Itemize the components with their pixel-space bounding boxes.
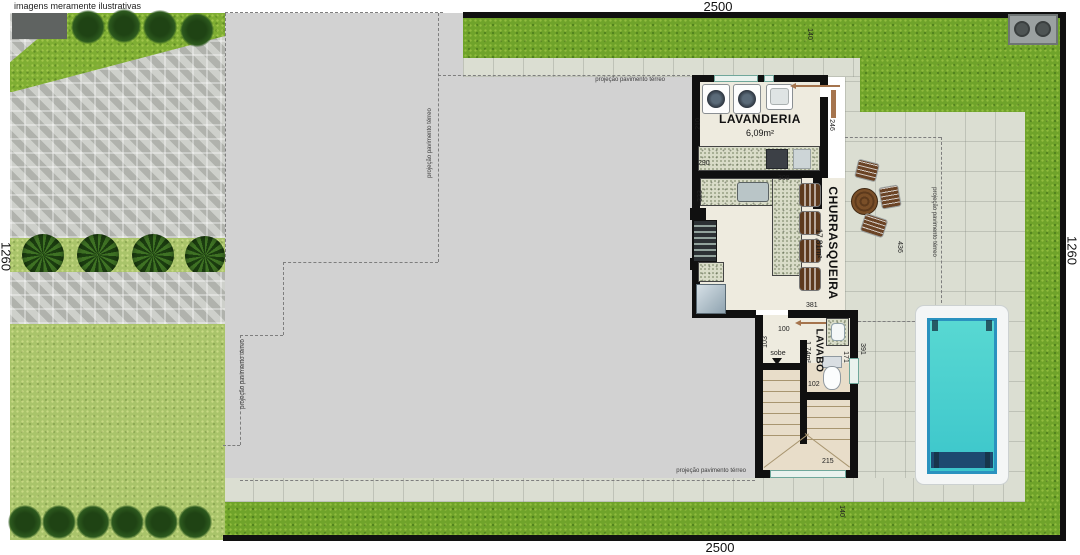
churrasqueira-area: 17,81m² [815, 219, 824, 269]
projection-outline [858, 321, 920, 322]
pool-ladder-icon [986, 320, 992, 331]
washer-drum-icon [707, 90, 725, 108]
border-bush-icon [110, 505, 144, 539]
fridge-icon [696, 284, 726, 314]
projection-outline [240, 480, 755, 481]
lavabo-name: LAVABO [815, 321, 826, 381]
pool-handrail-icon [985, 452, 990, 468]
lavabo-basin-icon [831, 323, 845, 341]
walkway-pavers [10, 272, 225, 324]
projection-outline [225, 12, 443, 13]
dim-100: 100 [778, 326, 790, 334]
churrasqueira-counter-left [698, 262, 724, 282]
pool-deep-end [931, 452, 993, 468]
lavanderia-wall-bottom [692, 171, 828, 178]
dim-436: 436 [895, 232, 903, 262]
door-arrow-icon [790, 83, 796, 89]
boundary-wall-top [463, 12, 1066, 18]
border-bush-icon [178, 505, 212, 539]
lavanderia-wall-right-upper [820, 75, 828, 85]
toilet-bowl-icon [823, 366, 841, 390]
lavanderia-wall-top [692, 75, 828, 82]
stair-treads-right [807, 396, 850, 444]
churrasqueira-wall-bottom-right [788, 310, 858, 318]
dim-103: 103 [762, 327, 770, 357]
pool-water [927, 318, 997, 474]
projection-label: projeção pavimento térreo [426, 98, 434, 188]
projection-label: projeção pavimento térreo [654, 467, 746, 475]
utility-drum-icon [1014, 21, 1030, 37]
churrasqueira-bar-counter [772, 178, 802, 276]
palm-plant-icon [132, 234, 174, 276]
stair-treads-left [763, 370, 800, 436]
projection-label: projeção pavimento térreo [565, 76, 665, 84]
bar-sink-icon [737, 182, 769, 202]
stair-block-wall-right [850, 310, 858, 478]
lavanderia-name: LAVANDERIA [700, 112, 820, 126]
stairs-up-arrow-icon [772, 358, 782, 365]
churrasqueira-name: CHURRASQUEIRA [826, 183, 840, 303]
setback-140-bottom: 140 [837, 496, 845, 526]
border-bush-icon [144, 505, 178, 539]
dim-308: 308 [778, 175, 790, 183]
dim-210: 210 [695, 109, 703, 139]
utility-drum-icon [1035, 21, 1051, 37]
projection-label: projeção pavimento térreo [930, 177, 938, 267]
dim-290: 290 [698, 160, 710, 168]
lot-dim-top: 2500 [683, 0, 753, 14]
patio-chair-icon [878, 184, 902, 209]
lavabo-area: 1,74m² [804, 333, 812, 371]
dim-171: 171 [841, 342, 849, 372]
dim-391: 391 [858, 334, 866, 364]
lavanderia-window-small [764, 75, 774, 82]
hedge-bush-icon [71, 10, 105, 44]
pool-ladder-icon [932, 320, 938, 331]
projection-outline [225, 13, 226, 262]
projection-outline [283, 262, 284, 335]
lot-dim-left: 1260 [0, 237, 13, 277]
border-bush-icon [76, 505, 110, 539]
projection-outline [438, 13, 439, 262]
sink-board-icon [793, 149, 811, 169]
ground-slab-extension [695, 315, 757, 478]
lawn-top [463, 18, 1060, 58]
hedge-bush-icon [143, 10, 177, 44]
lot-dim-bottom: 2500 [685, 541, 755, 555]
dim-323: 323 [697, 181, 705, 211]
lawn-right [1025, 58, 1060, 502]
utility-pad [12, 13, 67, 39]
hedge-bush-icon [180, 13, 214, 47]
boundary-wall-bottom [223, 535, 1066, 541]
setback-140-top: 140 [805, 19, 813, 49]
palm-plant-icon [77, 234, 119, 276]
grill-icon [693, 220, 717, 262]
disclaimer-text: imagens meramente ilustrativas [14, 1, 141, 11]
lavanderia-window [714, 75, 758, 82]
boundary-wall-right [1060, 12, 1066, 541]
stairs-window [770, 470, 846, 478]
palm-plant-icon [185, 236, 225, 276]
projection-outline [941, 137, 942, 308]
projection-label: projeção pavimento térreo [239, 329, 247, 419]
border-bush-icon [42, 505, 76, 539]
projection-outline [283, 262, 438, 263]
lavanderia-area: 6,09m² [700, 128, 820, 138]
cooktop-icon [766, 149, 788, 169]
stairs-wall-top [762, 363, 802, 370]
projection-outline [223, 445, 240, 446]
lot-dim-right: 1260 [1066, 231, 1079, 271]
door-swing-line [796, 85, 840, 87]
bar-stool-icon [799, 183, 821, 207]
dim-215: 215 [822, 458, 834, 466]
projection-outline [845, 137, 941, 138]
border-bush-icon [8, 505, 42, 539]
door-arrow-icon [795, 320, 801, 326]
palm-plant-icon [22, 234, 64, 276]
dim-102: 102 [808, 381, 820, 389]
hedge-bush-icon [107, 9, 141, 43]
dim-246: 246 [827, 110, 835, 140]
dim-381: 381 [806, 302, 818, 310]
washer-drum-icon [738, 90, 756, 108]
pool-handrail-icon [934, 452, 939, 468]
floor-plan: projeção pavimento térreo projeção pavim… [0, 0, 1080, 555]
lawn-bottom [223, 502, 1060, 535]
round-table-icon [851, 188, 878, 215]
laundry-sink-basin-icon [770, 88, 789, 105]
bar-stool-icon [799, 267, 821, 291]
